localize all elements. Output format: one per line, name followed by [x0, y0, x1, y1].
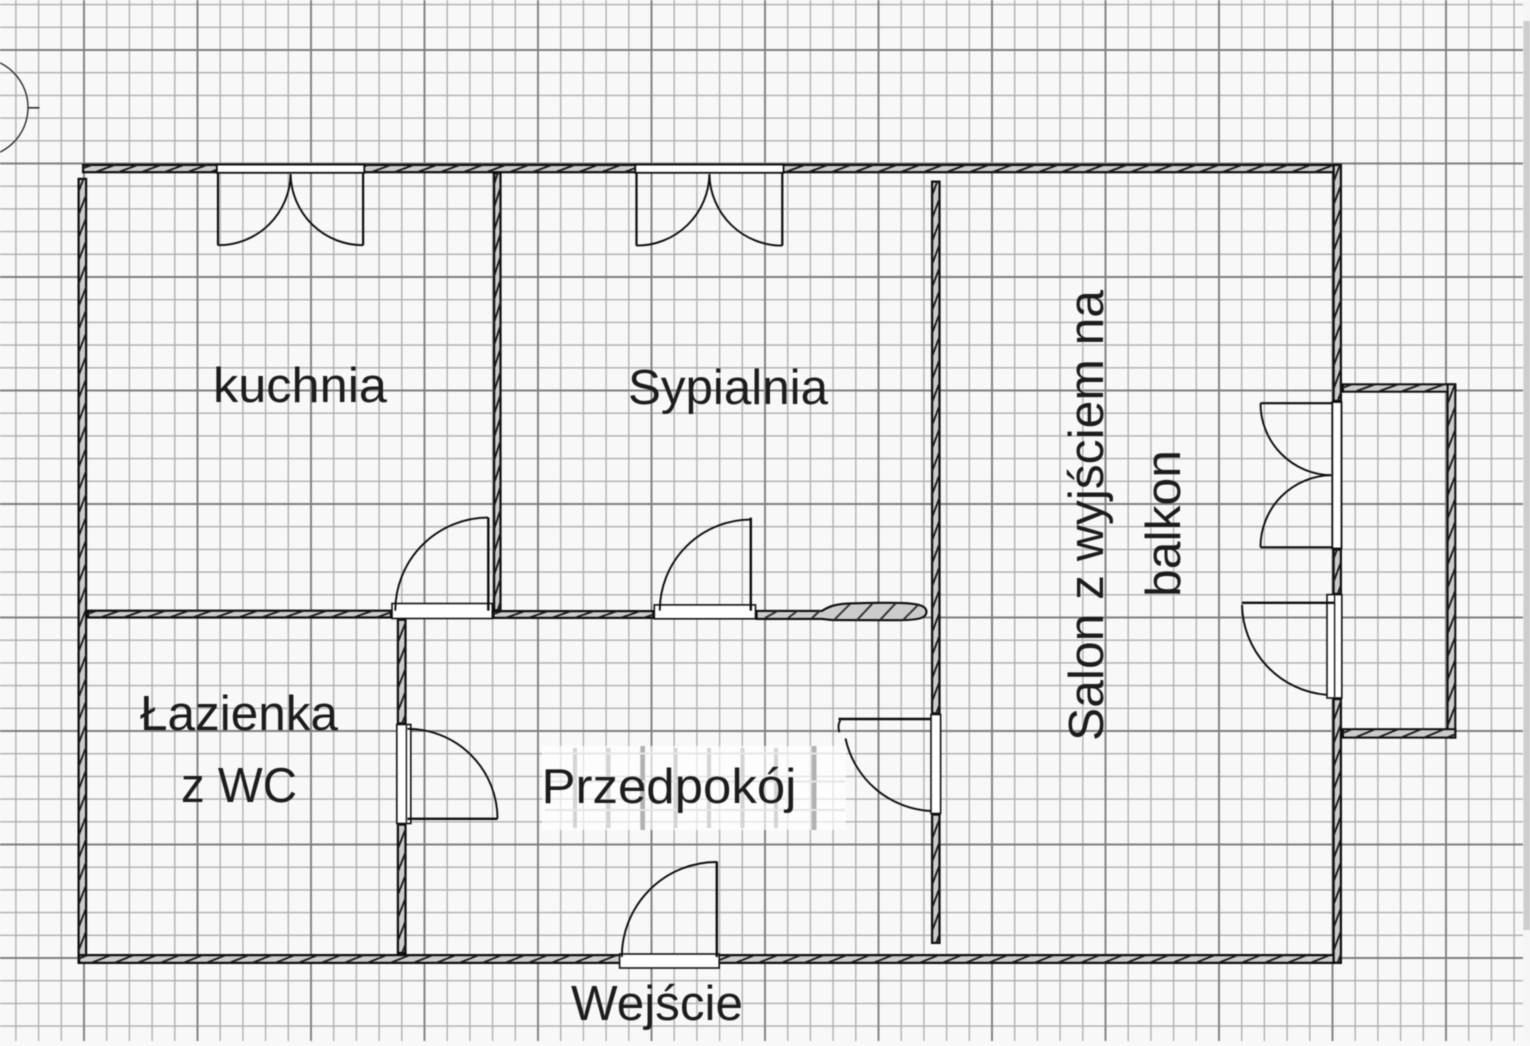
svg-text:kuchnia: kuchnia [213, 359, 388, 413]
svg-text:Salon z wyjściem na: Salon z wyjściem na [1060, 289, 1114, 741]
svg-text:Sypialnia: Sypialnia [628, 361, 829, 415]
svg-text:z WC: z WC [181, 759, 297, 813]
svg-text:balkon: balkon [1137, 450, 1191, 597]
svg-text:Wejście: Wejście [571, 977, 743, 1031]
svg-text:Przedpokój: Przedpokój [542, 760, 797, 814]
svg-text:Łazienka: Łazienka [140, 687, 339, 741]
